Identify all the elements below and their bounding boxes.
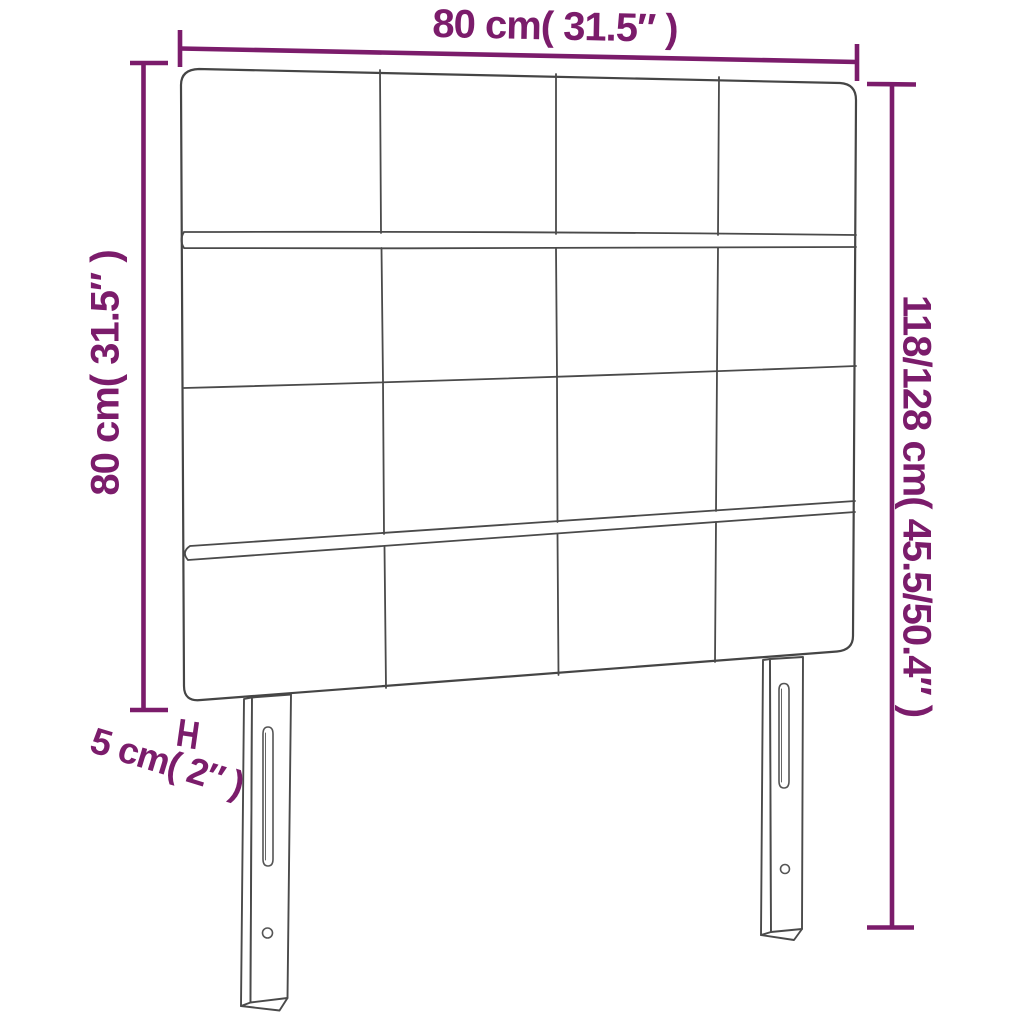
right-leg-slot	[779, 684, 789, 789]
left-leg-slot	[263, 727, 273, 866]
thickness-bracket-crossbar	[181, 733, 195, 735]
panel-height-dimension-label: 80 cm( 31.5″ )	[84, 250, 129, 495]
thickness-bracket-icon	[179, 719, 197, 749]
headboard-drawing	[0, 0, 1024, 1024]
panel-height-dimension-line	[130, 63, 168, 710]
right-leg-bolt-hole	[781, 865, 790, 874]
total-height-dimension-label: 118/128 cm( 45.5/50.4″ )	[894, 295, 939, 717]
width-dimension-bar	[180, 49, 857, 63]
left-leg-bolt-hole	[263, 928, 273, 938]
total-height-dimension-tick-top	[867, 84, 916, 85]
left-leg	[241, 695, 291, 1011]
right-leg	[761, 657, 803, 940]
diagram-canvas: 80 cm( 31.5″ ) 80 cm( 31.5″ ) 118/128 cm…	[0, 0, 1024, 1024]
width-dimension-label: 80 cm( 31.5″ )	[432, 2, 678, 52]
headboard-panel	[181, 69, 856, 700]
